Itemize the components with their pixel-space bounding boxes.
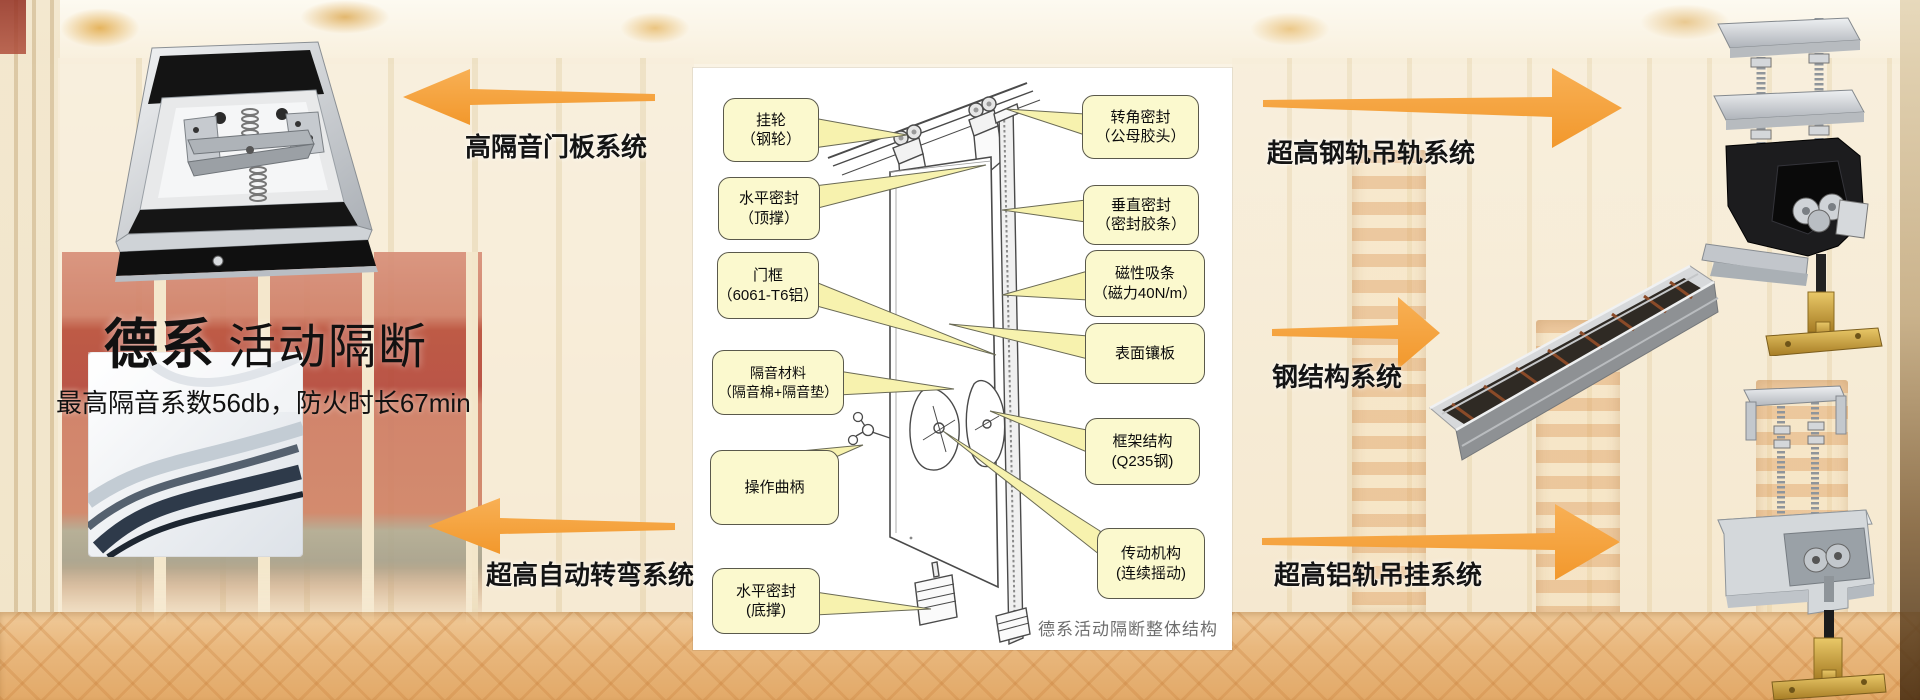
callout-line: （磁力40N/m） xyxy=(1093,284,1197,304)
callout-sound-insulation-material: 隔音材料 （隔音棉+隔音垫） xyxy=(712,350,844,415)
callout-hanging-wheel: 挂轮 （钢轮） xyxy=(723,98,819,162)
label-steel-track-system: 超高钢轨吊轨系统 xyxy=(1267,133,1475,170)
slide-stage: 挂轮 （钢轮） 水平密封 （顶撑） 门框 （6061-T6铝） 隔音材料 （隔音… xyxy=(0,0,1920,700)
callout-line: (连续摇动) xyxy=(1116,564,1186,584)
callout-line: （密封胶条） xyxy=(1096,215,1186,235)
callout-line: （隔音棉+隔音垫） xyxy=(718,383,838,401)
label-door-panel-system: 高隔音门板系统 xyxy=(465,127,647,164)
product-title: 德系活动隔断 xyxy=(104,300,428,379)
callout-corner-seal: 转角密封 （公母胶头） xyxy=(1082,95,1199,159)
structure-diagram-panel: 挂轮 （钢轮） 水平密封 （顶撑） 门框 （6061-T6铝） 隔音材料 （隔音… xyxy=(693,68,1232,650)
ceiling-light xyxy=(1250,12,1330,46)
product-title-brand: 德系 xyxy=(104,315,216,375)
callout-line: （顶撑） xyxy=(739,209,799,229)
callout-horizontal-seal-top: 水平密封 （顶撑） xyxy=(718,177,820,240)
label-aluminum-track-system: 超高铝轨吊挂系统 xyxy=(1274,555,1482,592)
callout-line: （公母胶头） xyxy=(1095,127,1185,147)
photo-steel-rail-hanger xyxy=(1688,6,1918,356)
callout-line: 挂轮 xyxy=(756,111,786,131)
diagram-caption: 德系活动隔断整体结构 xyxy=(1023,615,1233,640)
photo-steel-structure xyxy=(1422,238,1722,468)
callout-line: 传动机构 xyxy=(1121,544,1181,564)
callout-line: 框架结构 xyxy=(1112,432,1172,452)
left-wall-panels xyxy=(0,0,60,640)
callout-operating-crank: 操作曲柄 xyxy=(710,450,839,525)
callout-line: (Q235钢) xyxy=(1112,452,1174,472)
callout-line: 操作曲柄 xyxy=(744,478,804,498)
callout-line: (底撑) xyxy=(746,601,786,621)
callout-horizontal-seal-bottom: 水平密封 (底撑) xyxy=(712,568,820,634)
callout-transmission-mechanism: 传动机构 (连续摇动) xyxy=(1097,528,1205,599)
callout-line: 水平密封 xyxy=(739,189,799,209)
corner-accent xyxy=(0,0,26,54)
product-subtitle: 最高隔音系数56db，防火时长67min xyxy=(56,383,471,420)
label-auto-turn-system: 超高自动转弯系统 xyxy=(486,555,694,592)
callout-line: 磁性吸条 xyxy=(1115,264,1175,284)
callout-surface-panel: 表面镶板 xyxy=(1085,323,1205,384)
photo-aluminum-rail-hanger xyxy=(1688,382,1918,700)
callout-line: （钢轮） xyxy=(741,130,801,150)
photo-door-top-mechanism xyxy=(100,12,400,292)
callout-magnetic-strip: 磁性吸条 （磁力40N/m） xyxy=(1085,250,1205,317)
callout-line: 水平密封 xyxy=(736,582,796,602)
callout-line: 转角密封 xyxy=(1110,108,1170,128)
label-steel-structure-system: 钢结构系统 xyxy=(1272,357,1402,394)
callout-door-frame: 门框 （6061-T6铝） xyxy=(717,252,819,319)
product-title-name: 活动隔断 xyxy=(228,321,428,374)
callout-frame-structure: 框架结构 (Q235钢) xyxy=(1085,418,1200,485)
callout-line: （6061-T6铝） xyxy=(718,286,819,306)
callout-line: 隔音材料 xyxy=(750,364,806,382)
callout-line: 垂直密封 xyxy=(1111,196,1171,216)
callout-line: 门框 xyxy=(753,266,783,286)
callout-line: 表面镶板 xyxy=(1115,344,1175,364)
callout-vertical-seal: 垂直密封 （密封胶条） xyxy=(1083,185,1199,245)
ceiling-light xyxy=(620,12,690,44)
